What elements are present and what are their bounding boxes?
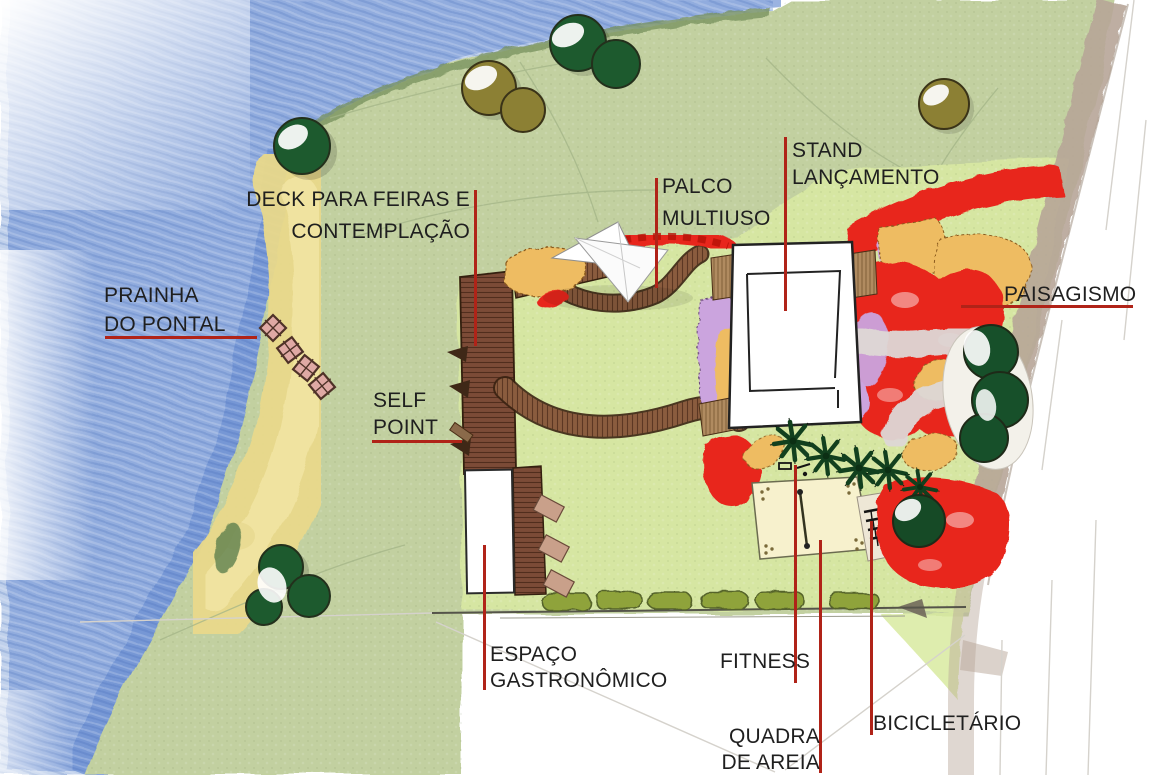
label-bicicletario: BICICLETÁRIO [873, 710, 1021, 737]
label-palco-multiuso: PALCO MULTIUSO [662, 171, 771, 235]
label-line: QUADRA [722, 724, 820, 750]
label-espaco-gastronomico: ESPAÇO GASTRONÔMICO [490, 642, 667, 694]
label-deck-feiras: DECK PARA FEIRAS E CONTEMPLAÇÃO [246, 184, 470, 248]
leader-line-espaco [483, 545, 486, 690]
label-line: DECK PARA FEIRAS E [246, 184, 470, 216]
label-quadra-de-areia: QUADRA DE AREIA [722, 724, 820, 775]
label-stand-lancamento: STAND LANÇAMENTO [792, 137, 939, 191]
label-line: MULTIUSO [662, 203, 771, 235]
label-paisagismo: PAISAGISMO [1004, 281, 1136, 308]
label-line: BICICLETÁRIO [873, 710, 1021, 737]
leader-line-bicicletario [870, 521, 873, 735]
label-line: POINT [373, 414, 438, 441]
label-line: SELF [373, 387, 438, 414]
label-line: CONTEMPLAÇÃO [246, 216, 470, 248]
landscape-master-plan: PRAINHA DO PONTAL DECK PARA FEIRAS E CON… [0, 0, 1150, 775]
sand-court [752, 477, 872, 559]
label-line: ESPAÇO [490, 642, 667, 668]
label-fitness: FITNESS [720, 648, 810, 675]
leader-line-palco [655, 178, 658, 288]
label-line: DE AREIA [722, 750, 820, 775]
label-line: FITNESS [720, 648, 810, 675]
label-line: GASTRONÔMICO [490, 668, 667, 694]
label-line: DO PONTAL [104, 310, 226, 339]
label-prainha-do-pontal: PRAINHA DO PONTAL [104, 281, 226, 339]
leader-line-deck [474, 190, 477, 346]
label-line: PAISAGISMO [1004, 281, 1136, 308]
leader-line-stand [784, 137, 787, 311]
label-line: PALCO [662, 171, 771, 203]
label-self-point: SELF POINT [373, 387, 438, 441]
label-line: STAND [792, 137, 939, 164]
label-line: PRAINHA [104, 281, 226, 310]
label-line: LANÇAMENTO [792, 164, 939, 191]
